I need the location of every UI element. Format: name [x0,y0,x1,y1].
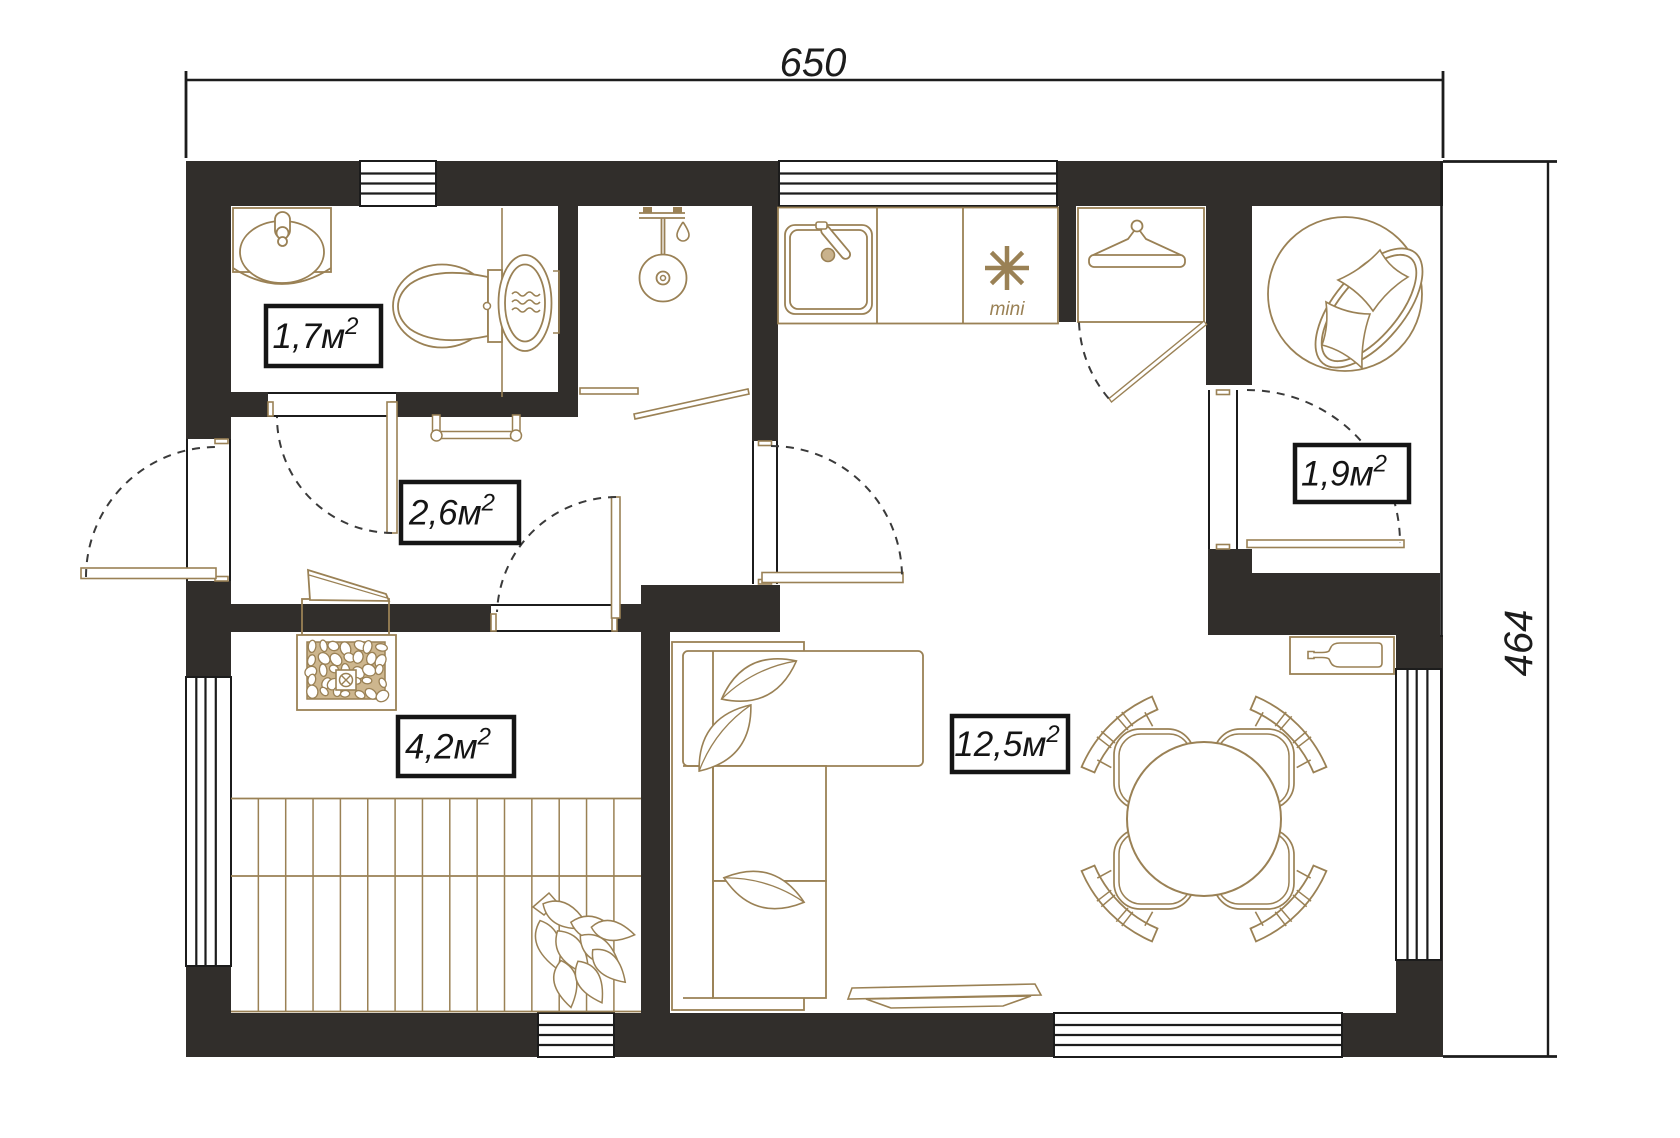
svg-text:464: 464 [1497,610,1541,677]
svg-text:650: 650 [780,41,847,85]
svg-text:mini: mini [990,299,1026,320]
svg-text:12,5м2: 12,5м2 [954,721,1059,764]
